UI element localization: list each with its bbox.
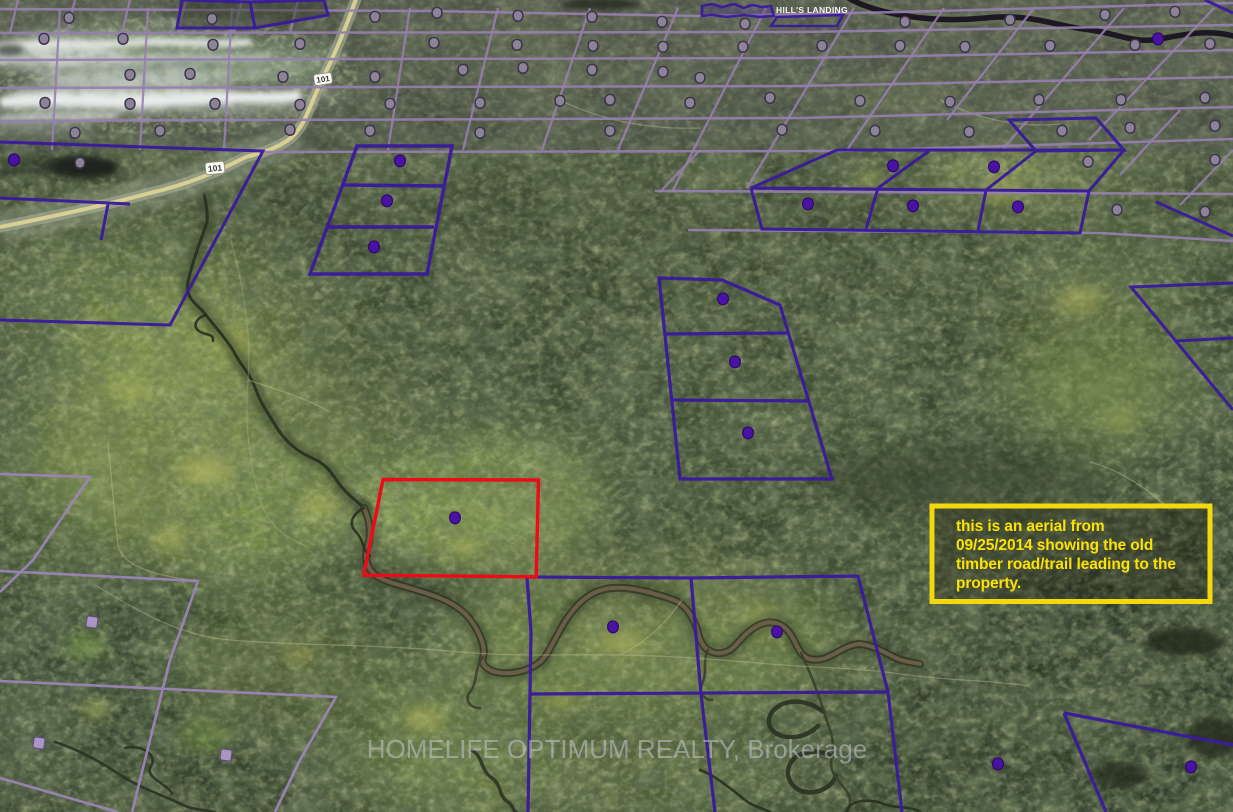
svg-text:HILL'S LANDING: HILL'S LANDING xyxy=(776,5,848,15)
svg-text:HOMELIFE OPTIMUM REALTY, Broke: HOMELIFE OPTIMUM REALTY, Brokerage xyxy=(367,734,867,764)
svg-text:property.: property. xyxy=(956,575,1021,592)
svg-text:timber road/trail leading to t: timber road/trail leading to the xyxy=(956,556,1176,573)
svg-text:101: 101 xyxy=(207,162,222,173)
svg-text:101: 101 xyxy=(316,74,331,85)
svg-text:this is an aerial from: this is an aerial from xyxy=(956,518,1105,535)
svg-text:09/25/2014 showing the old: 09/25/2014 showing the old xyxy=(956,537,1153,554)
